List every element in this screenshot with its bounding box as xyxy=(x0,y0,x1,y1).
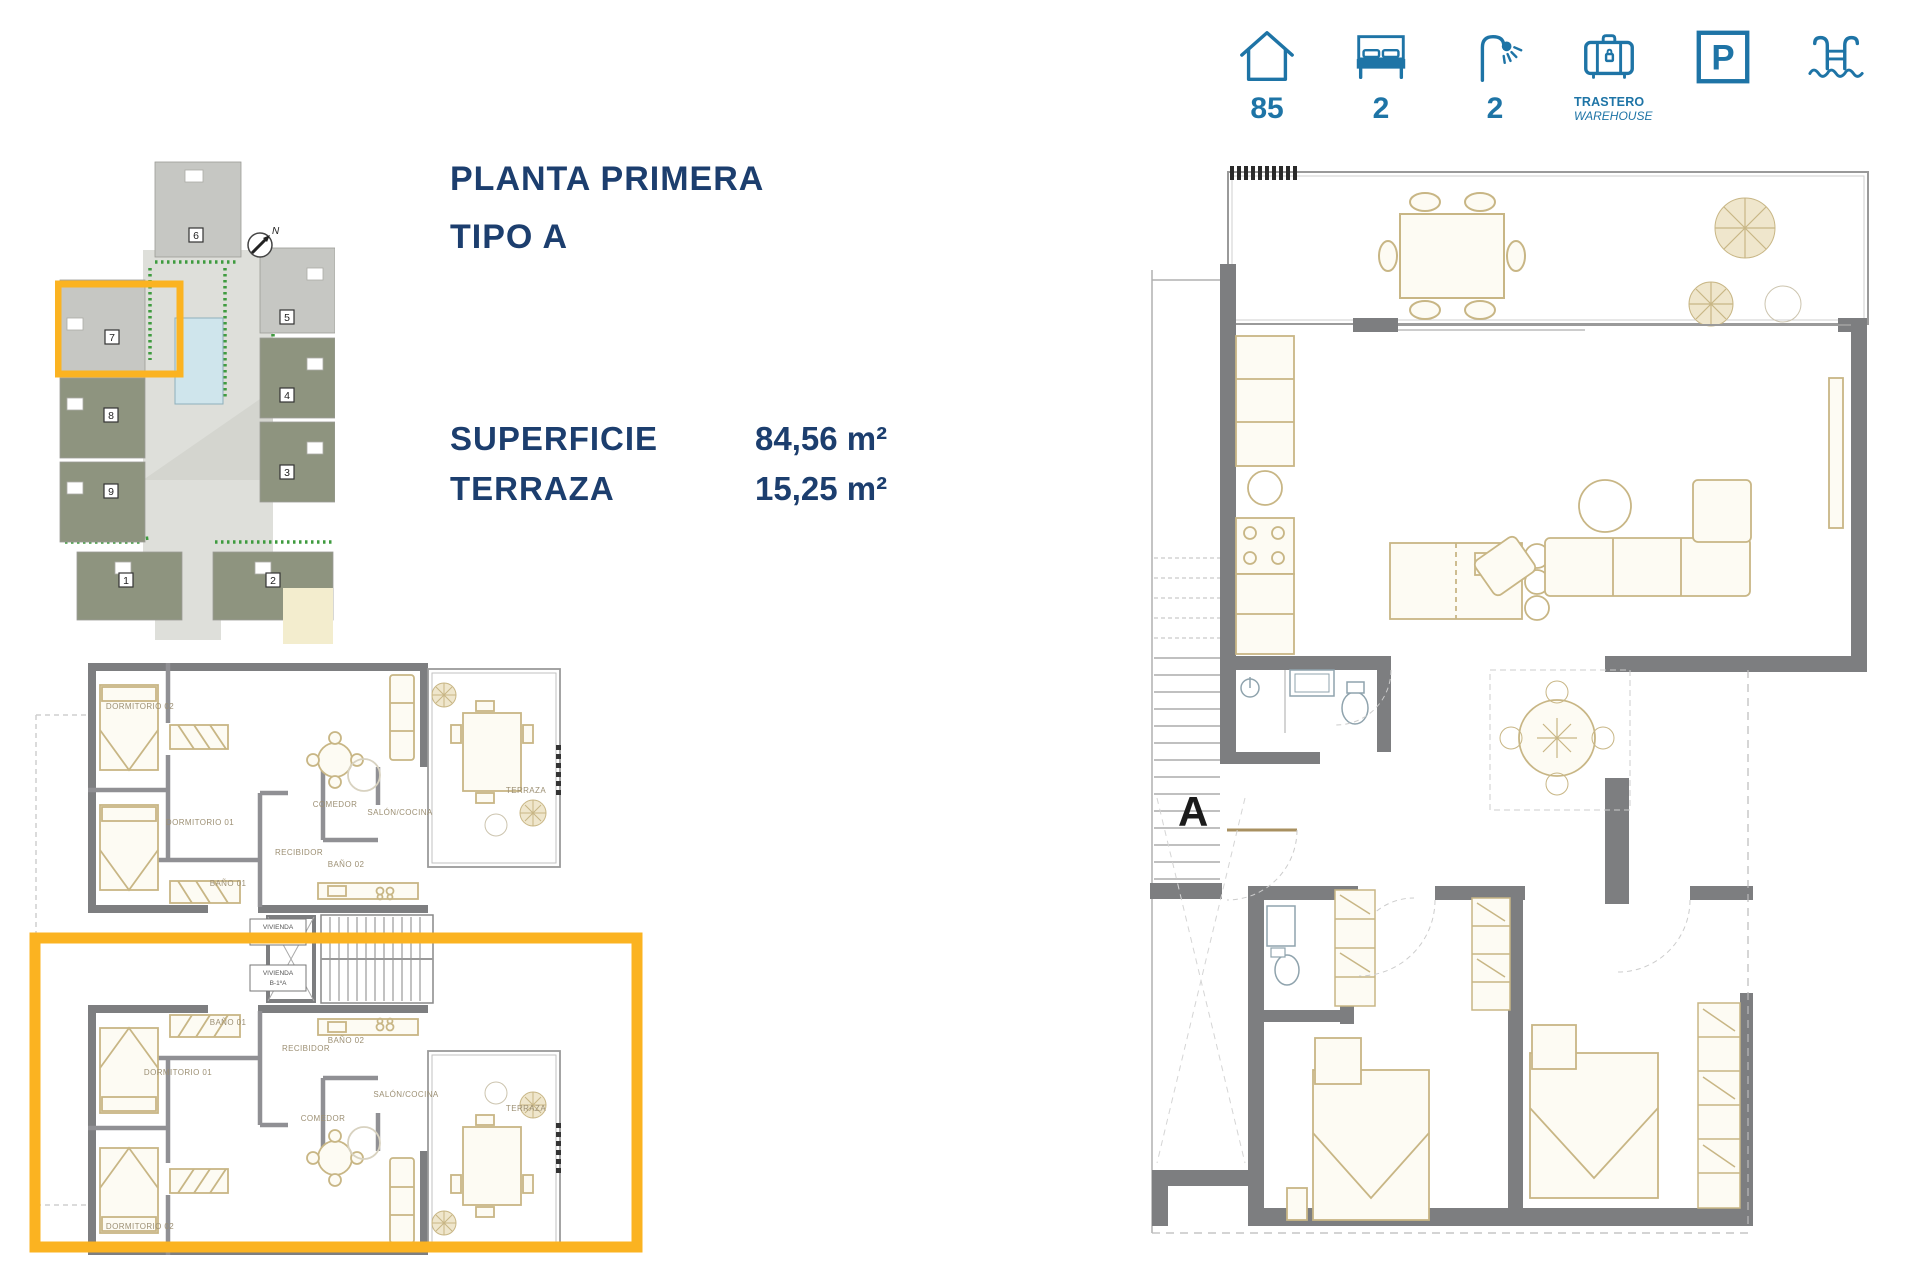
feature-parking: P xyxy=(1688,26,1758,88)
section-line xyxy=(1152,270,1220,1233)
terrace-plants xyxy=(1689,198,1801,326)
room-label: COMEDOR xyxy=(313,800,358,809)
wardrobe xyxy=(1472,898,1510,1010)
room-label: RECIBIDOR xyxy=(282,1044,330,1053)
feature-storage: TRASTERO WAREHOUSE xyxy=(1574,26,1644,123)
bed xyxy=(1530,1053,1658,1198)
bedroom-2 xyxy=(1530,1025,1658,1198)
room-label: BAÑO 02 xyxy=(328,1036,365,1045)
svg-text:3: 3 xyxy=(284,467,290,479)
room-label: TERRAZA xyxy=(506,1104,546,1113)
feature-bathrooms: 2 xyxy=(1460,26,1530,126)
room-label: DORMITORIO 02 xyxy=(106,1222,174,1231)
unit-tag-bottom: VIVIENDA B-1ºA xyxy=(250,965,306,991)
building-9 xyxy=(60,462,145,542)
coffee-table xyxy=(1579,480,1631,532)
room-label: COMEDOR xyxy=(301,1114,346,1123)
plate-1: 1 xyxy=(119,573,133,587)
page-title: PLANTA PRIMERA xyxy=(450,160,764,199)
room-label: SALÓN/COCINA xyxy=(367,808,433,817)
terrace-label: TERRAZA xyxy=(450,470,755,508)
svg-text:6: 6 xyxy=(193,230,199,242)
house-icon xyxy=(1236,26,1298,88)
terrace-dining-set xyxy=(1379,193,1525,319)
page-subtitle: TIPO A xyxy=(450,218,568,257)
plate-5: 5 xyxy=(280,310,294,324)
pool-icon xyxy=(1806,26,1868,88)
room-label: TERRAZA xyxy=(506,786,546,795)
warehouse-icon xyxy=(1578,26,1640,88)
bedrooms-value: 2 xyxy=(1346,92,1416,126)
compass-label: N xyxy=(272,226,280,237)
building-4 xyxy=(260,338,335,418)
room-label: BAÑO 02 xyxy=(328,860,365,869)
terrace-value: 15,25 m² xyxy=(755,470,887,508)
building-8 xyxy=(60,378,145,458)
svg-text:9: 9 xyxy=(108,486,114,498)
plate-2: 2 xyxy=(266,573,280,587)
sideboard xyxy=(1829,378,1843,528)
sofa xyxy=(1545,480,1751,596)
storage-sublabel: WAREHOUSE xyxy=(1574,109,1644,123)
feature-icon-row: 85 2 2 xyxy=(1232,26,1872,126)
entry-hall xyxy=(1157,798,1297,1163)
unit-label: A xyxy=(1178,788,1208,835)
glass-front xyxy=(1398,325,1851,330)
upper-apartment xyxy=(88,663,561,913)
terrace-row: TERRAZA 15,25 m² xyxy=(450,470,930,508)
plate-4: 4 xyxy=(280,388,294,402)
site-sand-area xyxy=(283,588,333,644)
surface-table: SUPERFICIE 84,56 m² TERRAZA 15,25 m² xyxy=(450,420,930,520)
boundary-dashes xyxy=(36,715,88,1205)
svg-text:5: 5 xyxy=(284,312,290,324)
parking-icon: P xyxy=(1692,26,1754,88)
surface-value: 84,56 m² xyxy=(755,420,887,458)
svg-text:4: 4 xyxy=(284,390,290,402)
room-label: DORMITORIO 01 xyxy=(144,1068,212,1077)
plate-8: 8 xyxy=(104,408,118,422)
feature-pool xyxy=(1802,26,1872,88)
plan-sheet: 85 2 2 xyxy=(0,0,1920,1280)
svg-text:VIVIENDA: VIVIENDA xyxy=(263,924,294,931)
svg-text:8: 8 xyxy=(108,410,114,422)
room-label: BAÑO 01 xyxy=(210,879,247,888)
floor-plan-small: VIVIENDA B-1ºB VIVIENDA B-1ºA DORMITORIO… xyxy=(28,655,660,1267)
floor-plan-large: A xyxy=(945,158,1880,1270)
room-label: BAÑO 01 xyxy=(210,1018,247,1027)
bedroom-1 xyxy=(1287,1038,1429,1220)
parking-letter: P xyxy=(1711,39,1734,78)
room-label: DORMITORIO 01 xyxy=(166,818,234,827)
plate-3: 3 xyxy=(280,465,294,479)
living-room xyxy=(1472,378,1843,598)
bathrooms-value: 2 xyxy=(1460,92,1530,126)
bed-icon xyxy=(1350,26,1412,88)
svg-text:2: 2 xyxy=(270,575,276,587)
closet xyxy=(1698,1003,1740,1208)
svg-text:7: 7 xyxy=(109,332,115,344)
plate-9: 9 xyxy=(104,484,118,498)
feature-area: 85 xyxy=(1232,26,1302,126)
surface-row: SUPERFICIE 84,56 m² xyxy=(450,420,930,458)
svg-text:1: 1 xyxy=(123,575,129,587)
room-label: DORMITORIO 02 xyxy=(106,702,174,711)
feature-bedrooms: 2 xyxy=(1346,26,1416,126)
surface-label: SUPERFICIE xyxy=(450,420,755,458)
kitchen xyxy=(1236,336,1294,654)
area-value: 85 xyxy=(1232,92,1302,126)
room-label: SALÓN/COCINA xyxy=(373,1090,439,1099)
storage-label: TRASTERO xyxy=(1574,95,1644,109)
plate-7: 7 xyxy=(105,330,119,344)
building-5 xyxy=(260,248,335,333)
lower-apartment xyxy=(88,1005,561,1255)
stair-core: VIVIENDA B-1ºB VIVIENDA B-1ºA xyxy=(250,915,433,1003)
room-label: RECIBIDOR xyxy=(275,848,323,857)
svg-text:VIVIENDA: VIVIENDA xyxy=(263,970,294,977)
svg-text:B-1ºA: B-1ºA xyxy=(270,980,287,987)
site-plan: 6 5 4 3 7 8 9 1 2 N xyxy=(55,150,335,645)
wardrobe xyxy=(1335,890,1375,1006)
terrace xyxy=(1228,166,1868,326)
building-3 xyxy=(260,422,335,502)
bathroom-lower xyxy=(1248,886,1414,1024)
shower-icon xyxy=(1464,26,1526,88)
plate-6: 6 xyxy=(189,228,203,242)
